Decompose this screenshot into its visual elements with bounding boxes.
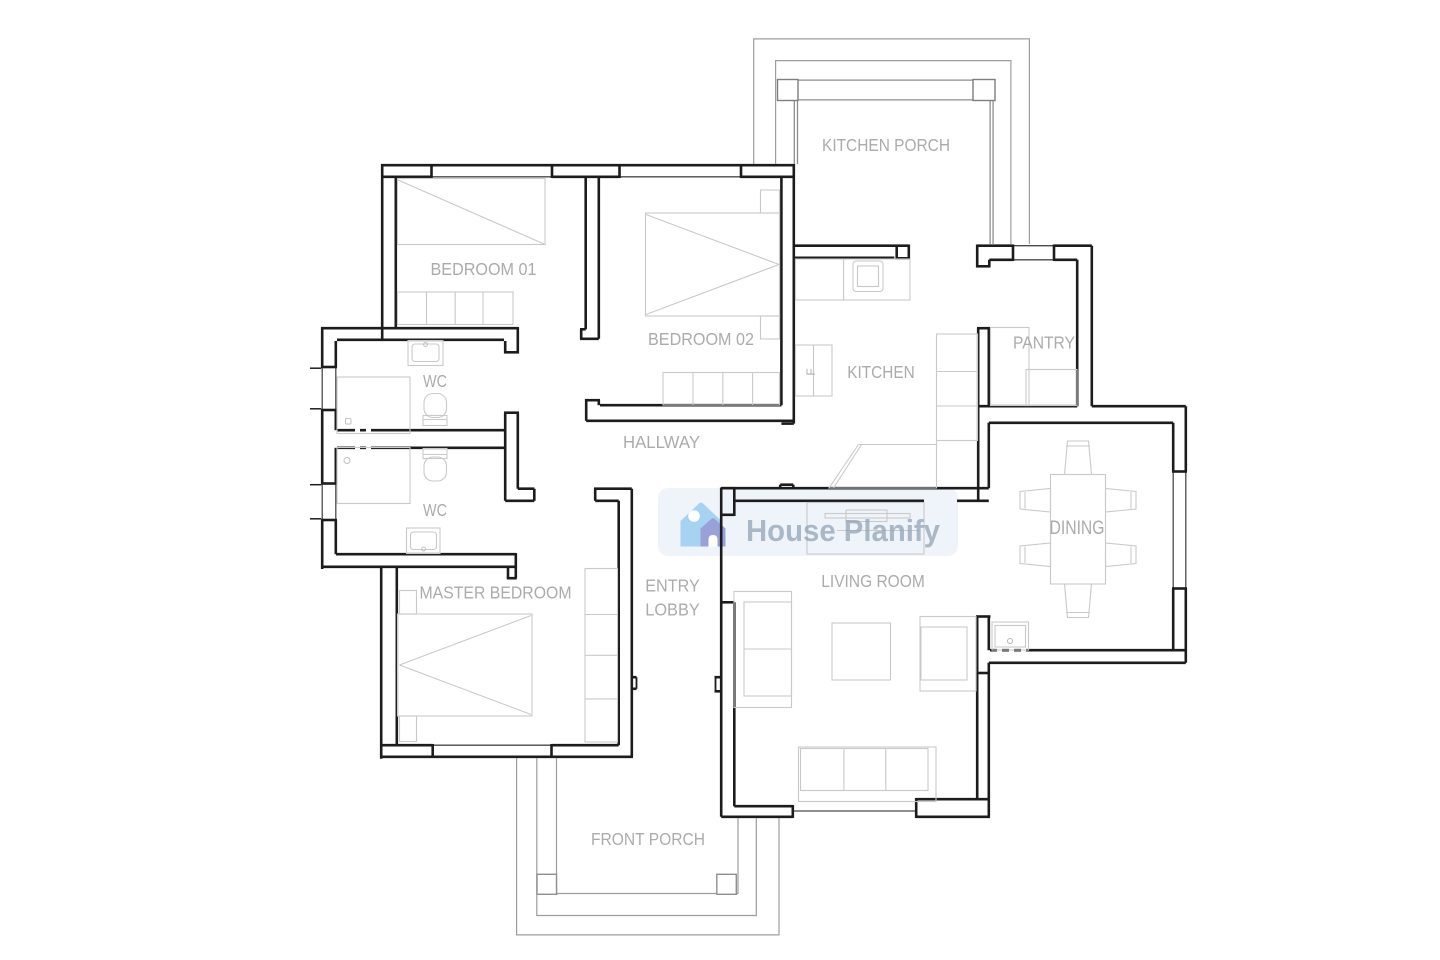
svg-text:DINING: DINING <box>1050 518 1105 539</box>
svg-text:BEDROOM 01: BEDROOM 01 <box>431 259 537 279</box>
svg-text:LIVING ROOM: LIVING ROOM <box>821 571 925 591</box>
svg-text:PANTRY: PANTRY <box>1013 333 1075 353</box>
svg-text:House Planify: House Planify <box>746 513 941 548</box>
svg-text:WC: WC <box>423 500 447 520</box>
svg-text:HALLWAY: HALLWAY <box>623 432 700 452</box>
svg-text:F: F <box>804 368 818 375</box>
svg-text:KITCHEN: KITCHEN <box>847 362 915 382</box>
svg-text:BEDROOM 02: BEDROOM 02 <box>648 329 754 349</box>
svg-text:FRONT PORCH: FRONT PORCH <box>591 829 705 849</box>
svg-text:LOBBY: LOBBY <box>645 600 700 620</box>
svg-text:MASTER BEDROOM: MASTER BEDROOM <box>420 583 572 603</box>
svg-text:KITCHEN PORCH: KITCHEN PORCH <box>822 135 950 155</box>
svg-text:WC: WC <box>423 371 447 391</box>
svg-text:ENTRY: ENTRY <box>645 576 700 596</box>
